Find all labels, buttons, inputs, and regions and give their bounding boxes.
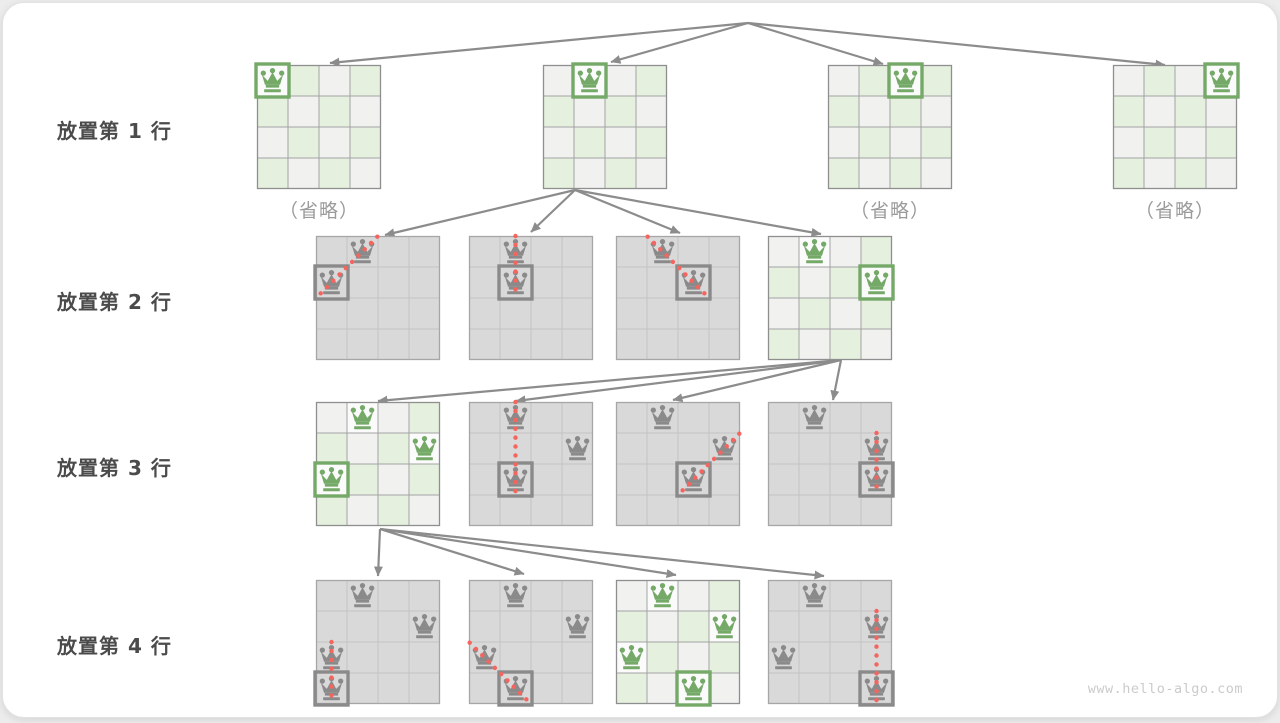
board-cell — [409, 267, 440, 298]
board-cell — [830, 329, 861, 360]
board-cell — [921, 96, 952, 127]
board-cell — [469, 298, 500, 329]
board-cell — [469, 580, 500, 611]
row-label-1: 放置第 1 行 — [57, 115, 257, 144]
board-cell — [616, 433, 647, 464]
board-cell — [574, 158, 605, 189]
board-cell — [605, 65, 636, 96]
board-cell — [316, 236, 347, 267]
board-cell — [861, 402, 892, 433]
board-cell — [469, 673, 500, 704]
board-cell — [1144, 158, 1175, 189]
board-cell — [616, 580, 647, 611]
board-cell — [799, 298, 830, 329]
board-cell — [799, 464, 830, 495]
board-r3-1 — [316, 402, 440, 526]
board-r2-2 — [469, 236, 593, 360]
board-cell — [562, 580, 593, 611]
board-cell — [830, 580, 861, 611]
board-cell — [531, 673, 562, 704]
board-cell — [531, 298, 562, 329]
board-cell — [316, 402, 347, 433]
board-cell — [605, 96, 636, 127]
board-cell — [531, 267, 562, 298]
row-label-3: 放置第 3 行 — [57, 452, 257, 481]
board-cell — [1175, 65, 1206, 96]
board-cell — [347, 642, 378, 673]
omitted-label-1: （省略） — [279, 196, 359, 223]
board-r3-4 — [768, 402, 892, 526]
board-cell — [378, 673, 409, 704]
board-cell — [319, 65, 350, 96]
board-cell — [647, 267, 678, 298]
board-cell — [1113, 65, 1144, 96]
board-cell — [378, 611, 409, 642]
board-cell — [531, 402, 562, 433]
board-cell — [469, 433, 500, 464]
board-cell — [605, 127, 636, 158]
board-cell — [616, 495, 647, 526]
board-cell — [500, 495, 531, 526]
board-r4-1 — [316, 580, 440, 704]
board-cell — [647, 611, 678, 642]
board-cell — [709, 642, 740, 673]
boards-layer — [3, 3, 1280, 723]
board-cell — [543, 127, 574, 158]
board-r2-1 — [316, 236, 440, 360]
board-cell — [257, 96, 288, 127]
board-cell — [678, 580, 709, 611]
board-cell — [647, 464, 678, 495]
board-cell — [828, 127, 859, 158]
board-cell — [616, 298, 647, 329]
board-cell — [1113, 127, 1144, 158]
board-cell — [859, 127, 890, 158]
board-cell — [678, 236, 709, 267]
board-cell — [861, 236, 892, 267]
board-cell — [921, 158, 952, 189]
board-cell — [830, 402, 861, 433]
board-cell — [830, 267, 861, 298]
board-cell — [768, 236, 799, 267]
board-cell — [830, 495, 861, 526]
board-cell — [1144, 65, 1175, 96]
board-cell — [531, 433, 562, 464]
board-cell — [861, 298, 892, 329]
board-cell — [768, 495, 799, 526]
board-cell — [378, 433, 409, 464]
board-cell — [636, 96, 667, 127]
board-cell — [1113, 158, 1144, 189]
board-cell — [469, 236, 500, 267]
board-cell — [830, 642, 861, 673]
board-cell — [709, 580, 740, 611]
board-cell — [469, 611, 500, 642]
board-cell — [1175, 158, 1206, 189]
board-cell — [678, 642, 709, 673]
board-r1-4 — [1113, 65, 1237, 189]
board-cell — [562, 267, 593, 298]
board-cell — [574, 127, 605, 158]
board-cell — [828, 65, 859, 96]
board-cell — [709, 495, 740, 526]
board-cell — [678, 402, 709, 433]
board-cell — [768, 464, 799, 495]
row-label-4: 放置第 4 行 — [57, 630, 257, 659]
board-cell — [647, 298, 678, 329]
board-cell — [562, 329, 593, 360]
board-cell — [409, 464, 440, 495]
board-cell — [636, 65, 667, 96]
board-cell — [1175, 96, 1206, 127]
board-cell — [1206, 158, 1237, 189]
board-cell — [543, 158, 574, 189]
board-cell — [531, 329, 562, 360]
board-cell — [500, 298, 531, 329]
board-cell — [350, 96, 381, 127]
board-cell — [768, 298, 799, 329]
board-cell — [378, 236, 409, 267]
watermark: www.hello-algo.com — [1088, 681, 1243, 697]
board-cell — [562, 464, 593, 495]
board-r3-3 — [616, 402, 740, 526]
board-cell — [347, 298, 378, 329]
board-cell — [409, 495, 440, 526]
board-r2-4 — [768, 236, 892, 360]
board-cell — [543, 65, 574, 96]
board-r2-3 — [616, 236, 740, 360]
board-cell — [830, 611, 861, 642]
board-cell — [709, 673, 740, 704]
board-cell — [469, 329, 500, 360]
board-cell — [378, 495, 409, 526]
board-cell — [799, 433, 830, 464]
board-cell — [378, 402, 409, 433]
board-cell — [768, 402, 799, 433]
board-cell — [605, 158, 636, 189]
board-cell — [921, 65, 952, 96]
board-r1-3 — [828, 65, 952, 189]
board-cell — [347, 267, 378, 298]
board-cell — [799, 611, 830, 642]
board-cell — [768, 673, 799, 704]
board-cell — [531, 580, 562, 611]
board-cell — [709, 298, 740, 329]
board-cell — [347, 673, 378, 704]
board-r4-2 — [469, 580, 593, 704]
board-cell — [347, 611, 378, 642]
board-cell — [709, 236, 740, 267]
board-cell — [861, 329, 892, 360]
board-cell — [768, 611, 799, 642]
board-cell — [678, 298, 709, 329]
board-cell — [616, 329, 647, 360]
board-cell — [562, 298, 593, 329]
board-cell — [647, 329, 678, 360]
board-cell — [768, 329, 799, 360]
board-cell — [678, 433, 709, 464]
board-cell — [257, 158, 288, 189]
board-cell — [799, 642, 830, 673]
board-cell — [316, 611, 347, 642]
board-cell — [378, 267, 409, 298]
board-cell — [636, 158, 667, 189]
board-cell — [830, 298, 861, 329]
canvas-card: 放置第 1 行 放置第 2 行 放置第 3 行 放置第 4 行 （省略） （省略… — [2, 2, 1278, 718]
board-cell — [636, 127, 667, 158]
board-cell — [288, 65, 319, 96]
board-cell — [616, 402, 647, 433]
board-cell — [709, 329, 740, 360]
board-cell — [288, 127, 319, 158]
board-cell — [350, 127, 381, 158]
board-cell — [830, 433, 861, 464]
board-r3-2 — [469, 402, 593, 526]
board-cell — [257, 127, 288, 158]
board-cell — [378, 298, 409, 329]
board-cell — [616, 673, 647, 704]
board-cell — [409, 580, 440, 611]
board-cell — [531, 611, 562, 642]
board-cell — [830, 236, 861, 267]
board-cell — [768, 580, 799, 611]
board-cell — [316, 329, 347, 360]
board-cell — [799, 495, 830, 526]
board-cell — [574, 96, 605, 127]
board-cell — [562, 236, 593, 267]
board-cell — [799, 267, 830, 298]
board-cell — [409, 329, 440, 360]
board-cell — [316, 495, 347, 526]
board-cell — [319, 158, 350, 189]
board-cell — [1113, 96, 1144, 127]
board-cell — [799, 329, 830, 360]
board-cell — [316, 298, 347, 329]
board-cell — [647, 433, 678, 464]
board-cell — [378, 329, 409, 360]
board-cell — [647, 642, 678, 673]
board-cell — [616, 611, 647, 642]
board-cell — [1206, 127, 1237, 158]
omitted-label-3: （省略） — [1135, 196, 1215, 223]
board-r1-1 — [257, 65, 381, 189]
board-cell — [1206, 96, 1237, 127]
board-cell — [531, 464, 562, 495]
board-cell — [316, 433, 347, 464]
board-cell — [859, 65, 890, 96]
board-cell — [469, 464, 500, 495]
board-cell — [678, 495, 709, 526]
board-cell — [678, 611, 709, 642]
board-cell — [678, 329, 709, 360]
board-cell — [500, 611, 531, 642]
board-cell — [709, 402, 740, 433]
board-cell — [768, 267, 799, 298]
board-cell — [562, 402, 593, 433]
row-label-2: 放置第 2 行 — [57, 286, 257, 315]
board-cell — [500, 329, 531, 360]
board-r1-2 — [543, 65, 667, 189]
omitted-label-2: （省略） — [850, 196, 930, 223]
board-cell — [288, 158, 319, 189]
board-cell — [531, 236, 562, 267]
board-cell — [347, 329, 378, 360]
board-cell — [378, 580, 409, 611]
board-cell — [861, 580, 892, 611]
board-cell — [378, 464, 409, 495]
board-cell — [890, 127, 921, 158]
board-cell — [500, 642, 531, 673]
board-cell — [830, 464, 861, 495]
board-cell — [1144, 96, 1175, 127]
board-cell — [347, 464, 378, 495]
board-cell — [316, 580, 347, 611]
board-cell — [319, 127, 350, 158]
board-cell — [378, 642, 409, 673]
board-cell — [562, 495, 593, 526]
board-cell — [531, 495, 562, 526]
board-cell — [859, 158, 890, 189]
board-cell — [890, 158, 921, 189]
board-cell — [347, 433, 378, 464]
board-cell — [409, 642, 440, 673]
board-cell — [562, 642, 593, 673]
board-cell — [828, 158, 859, 189]
board-cell — [469, 495, 500, 526]
board-cell — [562, 673, 593, 704]
board-cell — [347, 495, 378, 526]
board-cell — [799, 673, 830, 704]
board-cell — [1175, 127, 1206, 158]
board-cell — [319, 96, 350, 127]
board-cell — [890, 96, 921, 127]
board-cell — [531, 642, 562, 673]
board-cell — [350, 158, 381, 189]
board-cell — [709, 267, 740, 298]
board-cell — [616, 236, 647, 267]
board-cell — [409, 673, 440, 704]
board-cell — [709, 464, 740, 495]
board-cell — [350, 65, 381, 96]
board-cell — [828, 96, 859, 127]
board-cell — [543, 96, 574, 127]
board-r4-4 — [768, 580, 892, 704]
board-cell — [409, 298, 440, 329]
board-cell — [616, 267, 647, 298]
board-cell — [469, 402, 500, 433]
board-cell — [616, 464, 647, 495]
board-cell — [409, 402, 440, 433]
board-cell — [288, 96, 319, 127]
board-cell — [859, 96, 890, 127]
board-cell — [647, 673, 678, 704]
board-cell — [647, 495, 678, 526]
board-cell — [921, 127, 952, 158]
board-cell — [409, 236, 440, 267]
board-cell — [830, 673, 861, 704]
board-r4-3 — [616, 580, 740, 704]
board-cell — [469, 267, 500, 298]
board-cell — [861, 495, 892, 526]
board-cell — [768, 433, 799, 464]
board-cell — [1144, 127, 1175, 158]
